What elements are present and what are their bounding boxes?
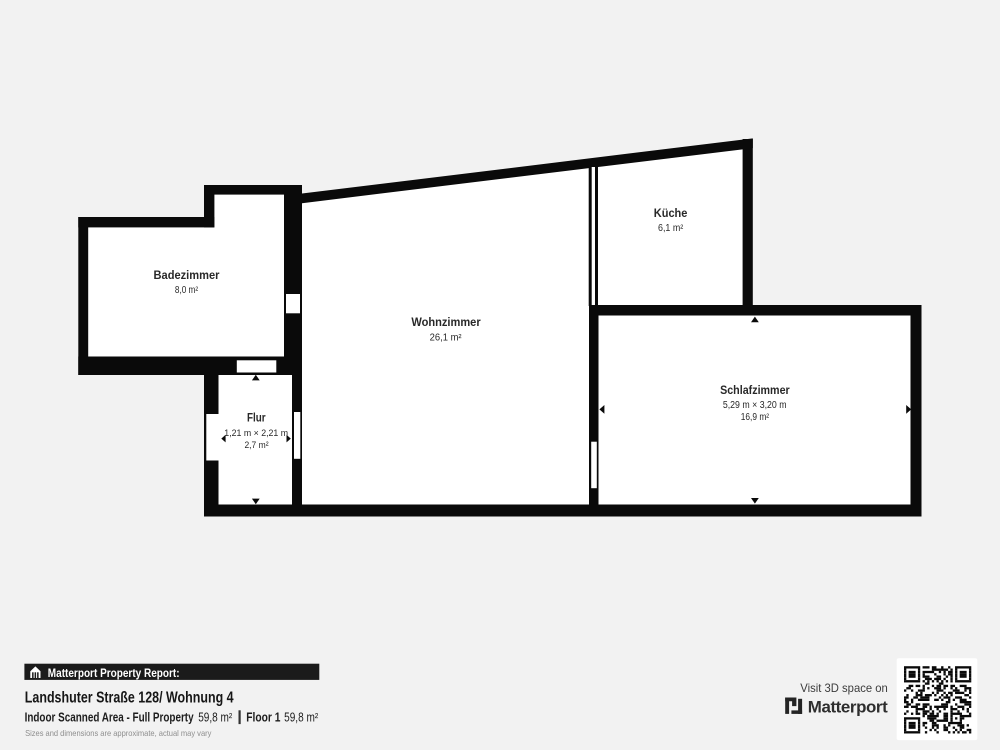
svg-text:Landshuter Straße 128/ Wohnung: Landshuter Straße 128/ Wohnung 4 xyxy=(25,689,234,706)
svg-text:16,9 m²: 16,9 m² xyxy=(741,412,770,423)
svg-text:Flur: Flur xyxy=(247,412,266,425)
svg-text:Wohnzimmer: Wohnzimmer xyxy=(411,315,480,329)
svg-text:59,8 m²: 59,8 m² xyxy=(284,711,318,725)
svg-text:5,29 m × 3,20 m: 5,29 m × 3,20 m xyxy=(723,400,787,411)
svg-text:Visit 3D space on: Visit 3D space on xyxy=(800,681,888,695)
svg-text:Sizes and dimensions are appro: Sizes and dimensions are approximate, ac… xyxy=(25,728,212,738)
svg-text:1,21 m × 2,21 m: 1,21 m × 2,21 m xyxy=(224,428,288,439)
svg-text:Indoor Scanned Area - Full Pro: Indoor Scanned Area - Full Property xyxy=(25,711,194,725)
svg-text:26,1 m²: 26,1 m² xyxy=(430,332,463,343)
svg-text:2,7 m²: 2,7 m² xyxy=(244,440,269,451)
svg-text:6,1 m²: 6,1 m² xyxy=(658,223,684,234)
svg-text:Matterport Property Report:: Matterport Property Report: xyxy=(48,666,180,680)
svg-text:Floor 1: Floor 1 xyxy=(246,711,280,725)
svg-text:Küche: Küche xyxy=(654,206,688,220)
svg-text:Matterport: Matterport xyxy=(808,697,888,716)
svg-text:Badezimmer: Badezimmer xyxy=(154,268,220,282)
svg-text:8,0 m²: 8,0 m² xyxy=(175,285,199,296)
svg-text:59,8 m²: 59,8 m² xyxy=(198,711,232,725)
svg-text:Schlafzimmer: Schlafzimmer xyxy=(720,383,790,397)
